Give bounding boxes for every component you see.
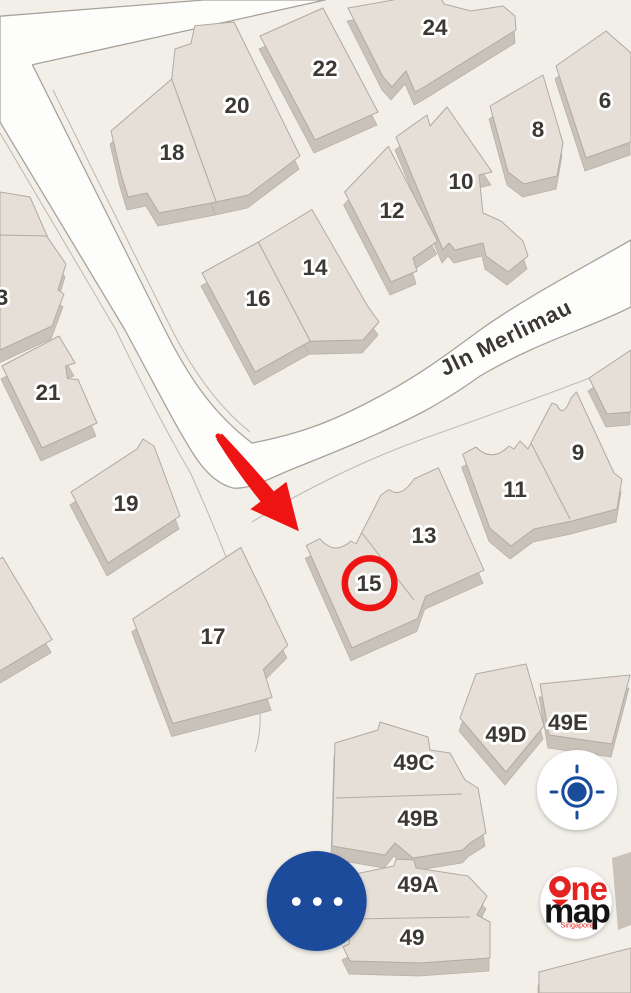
svg-text:13: 13	[411, 523, 436, 548]
svg-text:14: 14	[302, 255, 328, 280]
svg-text:8: 8	[532, 117, 545, 142]
svg-text:20: 20	[224, 93, 249, 118]
svg-text:49C: 49C	[393, 750, 434, 775]
svg-text:22: 22	[312, 56, 337, 81]
svg-text:6: 6	[599, 88, 612, 113]
svg-text:49D: 49D	[485, 722, 526, 747]
svg-text:49A: 49A	[397, 872, 438, 897]
svg-text:49E: 49E	[548, 710, 588, 735]
svg-text:15: 15	[356, 571, 381, 596]
svg-text:12: 12	[379, 198, 404, 223]
svg-text:11: 11	[503, 477, 527, 502]
svg-text:9: 9	[572, 440, 585, 465]
svg-text:17: 17	[200, 624, 225, 649]
svg-text:18: 18	[159, 140, 184, 165]
svg-text:21: 21	[35, 380, 60, 405]
svg-text:19: 19	[113, 491, 138, 516]
svg-text:24: 24	[422, 15, 448, 40]
svg-text:49: 49	[399, 925, 424, 950]
svg-text:10: 10	[448, 169, 473, 194]
svg-text:3: 3	[0, 285, 8, 310]
svg-text:49B: 49B	[397, 806, 438, 831]
svg-text:16: 16	[245, 286, 270, 311]
svg-text:Singapore: Singapore	[561, 920, 594, 929]
